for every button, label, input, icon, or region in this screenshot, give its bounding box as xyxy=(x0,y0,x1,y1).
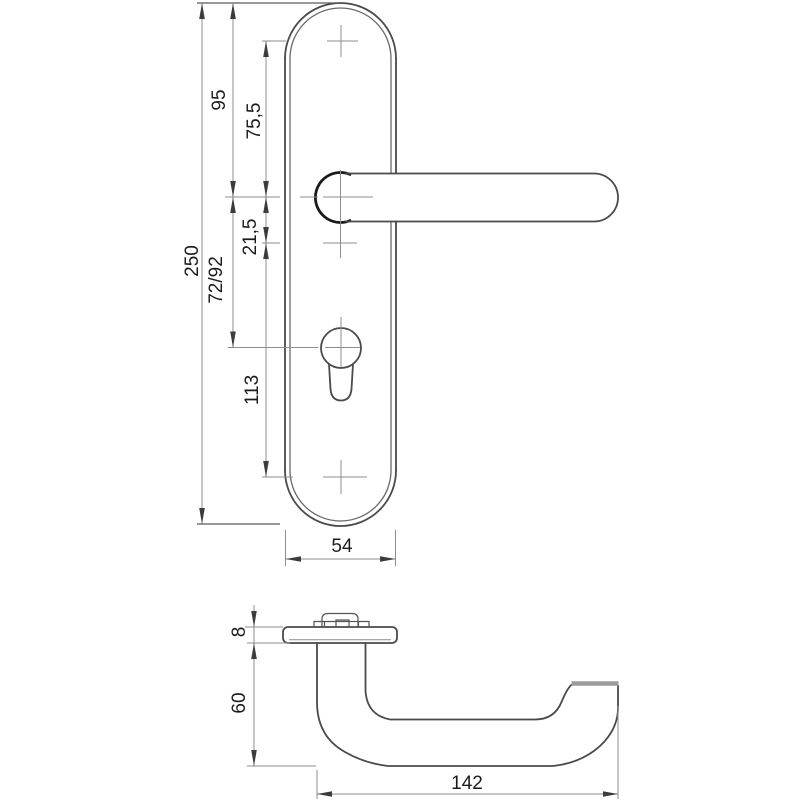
handle-grip-capsule xyxy=(346,174,618,222)
dim-overall-height-label: 250 xyxy=(182,245,203,277)
centerlines-front xyxy=(225,25,373,494)
technical-drawing-page: 250 95 72/92 75,5 xyxy=(0,0,800,800)
handle-outer-profile xyxy=(317,643,618,766)
front-view: 250 95 72/92 75,5 xyxy=(182,3,618,566)
spindle-bearing-detail xyxy=(314,614,369,628)
dim-8-label: 8 xyxy=(229,627,250,638)
dim-113-label: 113 xyxy=(242,375,263,405)
dim-21-5-label: 21,5 xyxy=(240,219,261,256)
lower-screw-cross xyxy=(262,460,367,494)
dim-142-label: 142 xyxy=(451,773,483,794)
dimensions-front: 250 95 72/92 75,5 xyxy=(182,3,396,566)
dim-thickness-and-projection: 8 60 xyxy=(229,605,257,766)
backplate-inner-outline xyxy=(290,8,391,521)
upper-screw-cross xyxy=(262,25,358,57)
dim-75-5-label: 75,5 xyxy=(244,103,265,140)
side-view: 8 60 142 xyxy=(229,605,619,799)
cylinder-axis-cross xyxy=(228,317,360,367)
dim-72-92-label: 72/92 xyxy=(206,256,227,304)
dim-overall-height: 250 xyxy=(182,3,205,524)
dimensions-side: 8 60 142 xyxy=(229,605,618,799)
dim-60-label: 60 xyxy=(229,692,250,713)
dim-plate-width: 54 xyxy=(286,530,396,566)
lever-handle-side xyxy=(317,643,619,766)
door-handle-drawing: 250 95 72/92 75,5 xyxy=(0,0,800,800)
dim-54-label: 54 xyxy=(331,536,353,557)
dim-95-label: 95 xyxy=(209,89,230,110)
rose-side-view xyxy=(283,627,397,643)
dim-screw-chain: 75,5 21,5 113 xyxy=(240,41,269,477)
dim-top-to-handle-axis: 95 72/92 xyxy=(206,3,236,348)
backplate-outer-outline xyxy=(285,3,396,526)
handle-inner-profile xyxy=(366,643,573,720)
